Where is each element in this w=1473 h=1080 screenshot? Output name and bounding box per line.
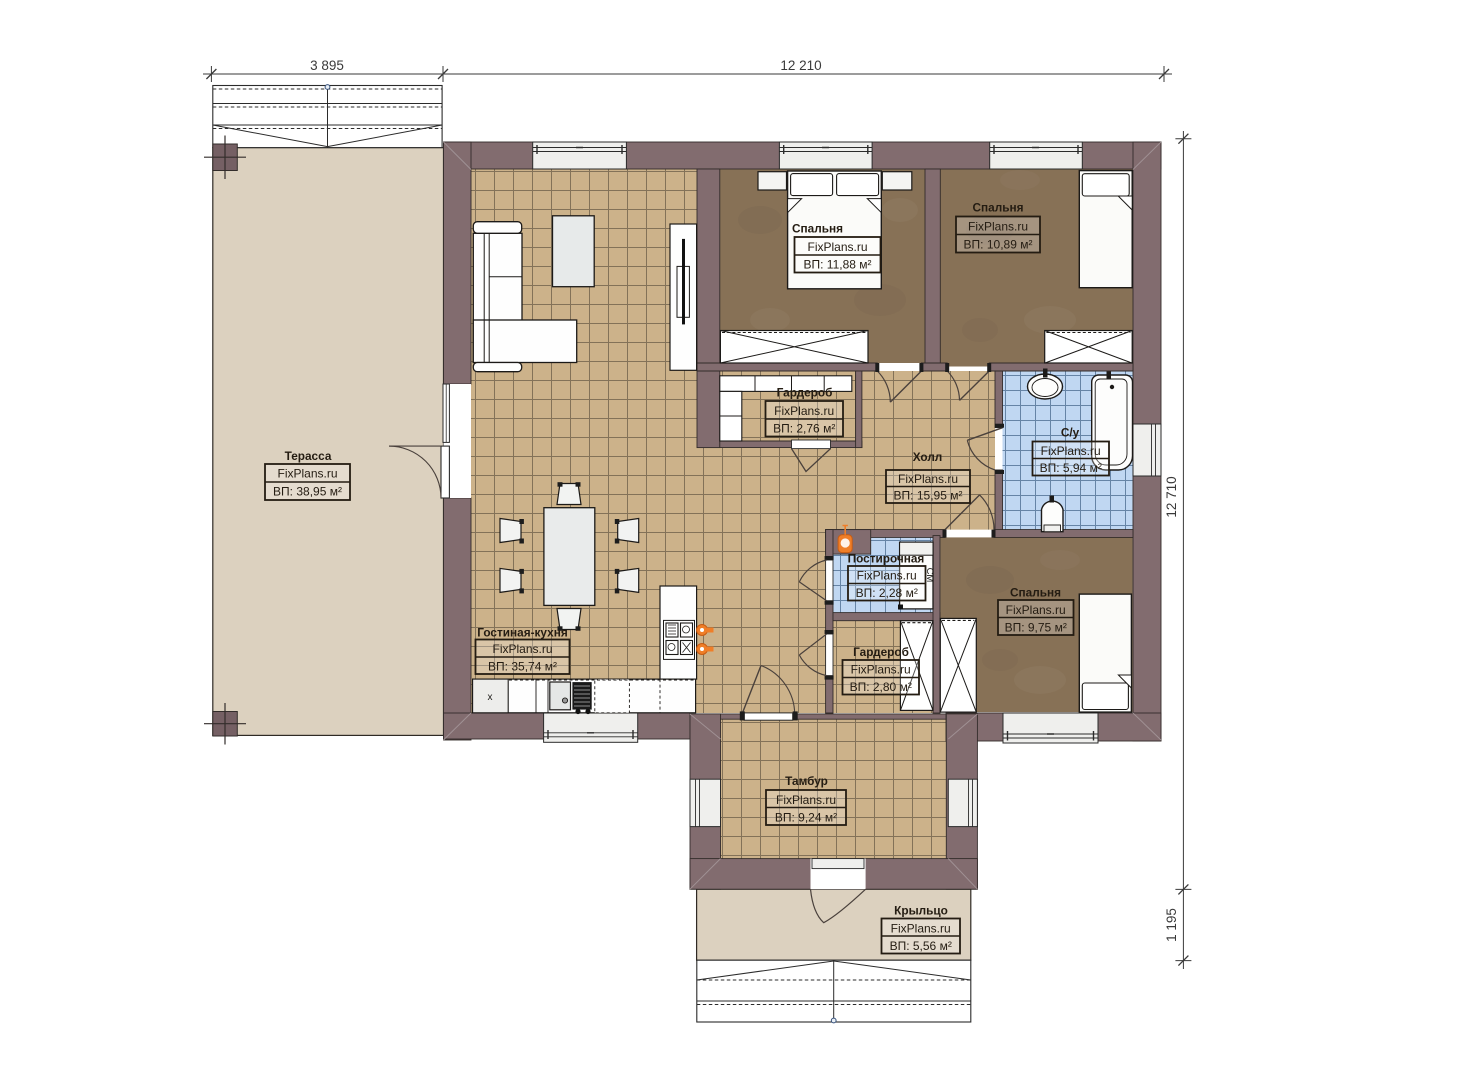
svg-text:ВП: 38,95 м²: ВП: 38,95 м² bbox=[273, 485, 342, 499]
svg-text:ВП: 9,24 м²: ВП: 9,24 м² bbox=[775, 810, 837, 824]
svg-text:x: x bbox=[488, 692, 493, 703]
svg-text:ВП: 10,89 м²: ВП: 10,89 м² bbox=[964, 237, 1033, 251]
svg-text:FixPlans.ru: FixPlans.ru bbox=[898, 472, 958, 486]
svg-text:FixPlans.ru: FixPlans.ru bbox=[968, 219, 1028, 233]
svg-text:FixPlans.ru: FixPlans.ru bbox=[277, 467, 337, 481]
svg-text:ВП: 9,75 м²: ВП: 9,75 м² bbox=[1005, 620, 1067, 634]
svg-text:ВП: 5,56 м²: ВП: 5,56 м² bbox=[890, 939, 952, 953]
svg-text:12 710: 12 710 bbox=[1164, 476, 1179, 517]
svg-text:Гостиная-кухня: Гостиная-кухня bbox=[477, 626, 568, 640]
svg-text:ВП: 15,95 м²: ВП: 15,95 м² bbox=[894, 489, 963, 503]
svg-text:FixPlans.ru: FixPlans.ru bbox=[851, 663, 911, 677]
svg-text:FixPlans.ru: FixPlans.ru bbox=[1041, 444, 1101, 458]
svg-text:Спальня: Спальня bbox=[792, 222, 843, 236]
svg-text:Гардероб: Гардероб bbox=[777, 386, 833, 400]
svg-text:FixPlans.ru: FixPlans.ru bbox=[776, 793, 836, 807]
svg-text:ВП: 2,80 м²: ВП: 2,80 м² bbox=[850, 680, 912, 694]
svg-text:3 895: 3 895 bbox=[310, 58, 344, 73]
svg-text:Постирочная: Постирочная bbox=[848, 552, 925, 566]
svg-text:Холл: Холл bbox=[913, 450, 943, 464]
svg-text:Крыльцо: Крыльцо bbox=[894, 904, 948, 918]
svg-text:ВП: 2,28 м²: ВП: 2,28 м² bbox=[856, 586, 918, 600]
svg-text:1 195: 1 195 bbox=[1164, 908, 1179, 942]
svg-text:ВП: 2,76 м²: ВП: 2,76 м² bbox=[773, 422, 835, 436]
svg-text:Тамбур: Тамбур bbox=[785, 774, 828, 788]
svg-text:FixPlans.ru: FixPlans.ru bbox=[1006, 603, 1066, 617]
svg-text:ВП: 11,88 м²: ВП: 11,88 м² bbox=[803, 258, 871, 272]
svg-text:FixPlans.ru: FixPlans.ru bbox=[492, 642, 552, 656]
svg-text:FixPlans.ru: FixPlans.ru bbox=[774, 404, 834, 418]
svg-text:С/у: С/у bbox=[1061, 426, 1080, 440]
svg-text:FixPlans.ru: FixPlans.ru bbox=[891, 921, 951, 935]
svg-text:FixPlans.ru: FixPlans.ru bbox=[807, 240, 867, 254]
svg-text:12 210: 12 210 bbox=[780, 58, 821, 73]
svg-text:ВП: 5,94 м²: ВП: 5,94 м² bbox=[1040, 461, 1102, 475]
svg-text:FixPlans.ru: FixPlans.ru bbox=[857, 569, 917, 583]
svg-text:Спальня: Спальня bbox=[973, 201, 1024, 215]
svg-text:Гардероб: Гардероб bbox=[853, 645, 909, 659]
svg-text:Терасса: Терасса bbox=[285, 449, 332, 463]
svg-text:Спальня: Спальня bbox=[1010, 586, 1061, 600]
svg-text:ВП: 35,74 м²: ВП: 35,74 м² bbox=[488, 660, 557, 674]
